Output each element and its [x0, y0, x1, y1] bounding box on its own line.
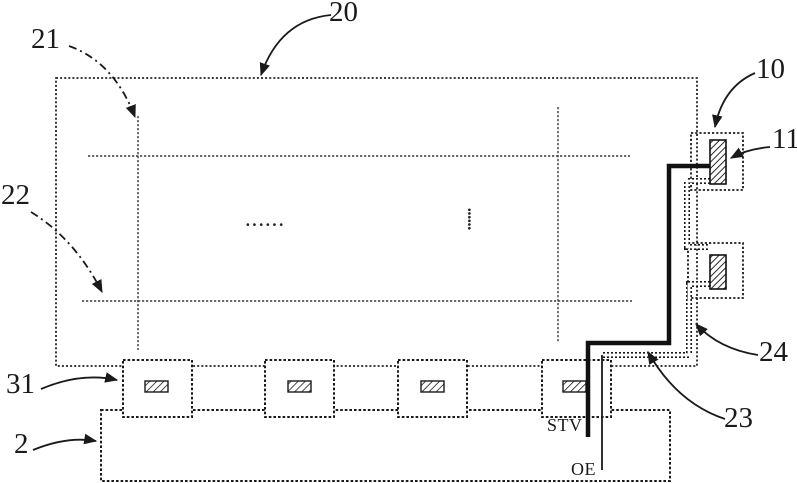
ellipsis-horizontal: ······ [245, 216, 285, 233]
label-pad-region-10: 10 [756, 55, 785, 84]
chip-hatch-1 [145, 381, 168, 392]
leader-2 [33, 440, 96, 450]
label-panel-20: 20 [329, 0, 358, 27]
ellipsis-vertical: ······ [461, 207, 478, 229]
leader-24 [696, 324, 758, 355]
leader-21 [69, 46, 135, 117]
patent-figure: 20 21 22 10 11 24 23 31 2 STV OE ······ … [0, 0, 797, 483]
label-stv-signal: STV [547, 416, 583, 434]
pad-hatch-upper [710, 140, 726, 184]
label-chip-31: 31 [6, 370, 35, 399]
leader-31 [41, 377, 117, 389]
leader-20 [261, 15, 331, 75]
chip-hatch-2 [288, 381, 311, 392]
label-gate-line-22: 22 [1, 181, 30, 210]
panel-outline [56, 78, 697, 366]
trace-24 [602, 181, 710, 470]
driver-chips [123, 360, 611, 417]
label-data-line-21: 21 [31, 25, 60, 54]
leader-22 [31, 212, 102, 292]
label-pad-11: 11 [772, 125, 797, 154]
figure-drawing [0, 0, 797, 483]
chip-hatch-3 [421, 381, 444, 392]
chip-hatch-4 [563, 381, 586, 392]
leader-11 [731, 147, 770, 158]
pad-hatch-lower [710, 255, 726, 289]
label-trace-23: 23 [724, 404, 753, 433]
leader-23 [648, 352, 725, 419]
label-oe-signal: OE [571, 460, 596, 478]
label-trace-24: 24 [759, 338, 788, 367]
leader-10 [715, 73, 755, 127]
label-board-2: 2 [14, 430, 29, 459]
